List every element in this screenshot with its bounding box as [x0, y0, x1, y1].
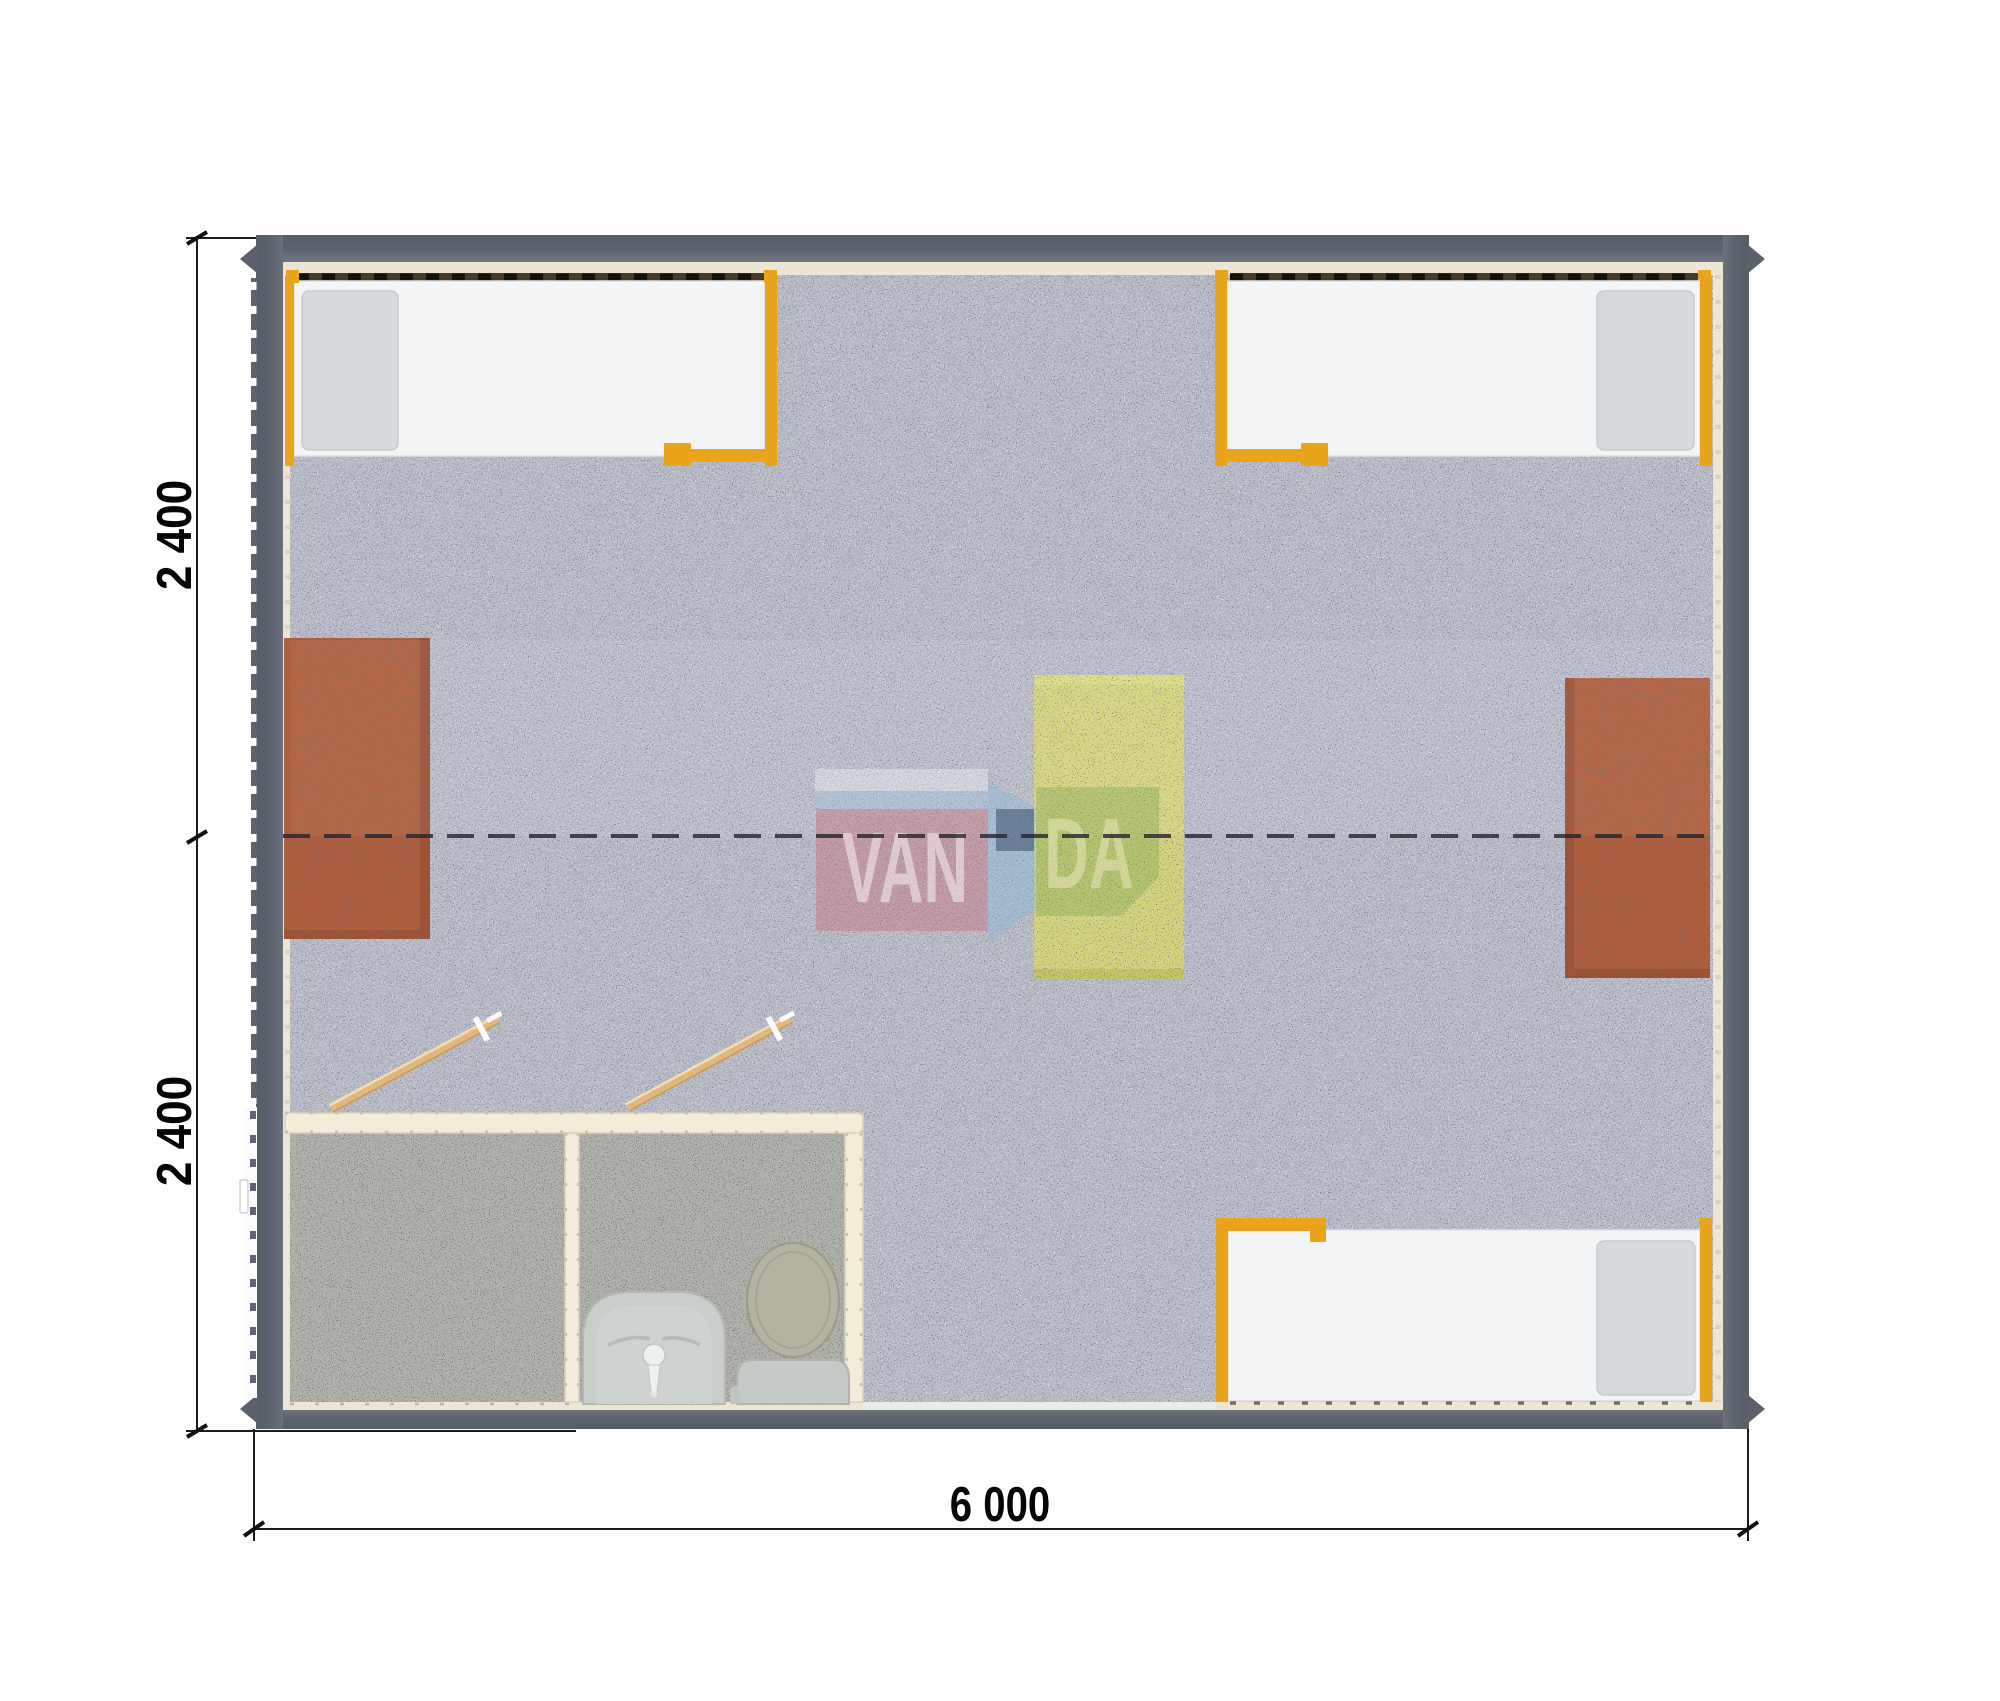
svg-text:2 400: 2 400 — [147, 480, 202, 590]
svg-text:VAN: VAN — [842, 812, 968, 924]
svg-text:DA: DA — [1044, 798, 1134, 910]
svg-text:2 400: 2 400 — [147, 1076, 202, 1186]
svg-text:6 000: 6 000 — [950, 1477, 1051, 1532]
